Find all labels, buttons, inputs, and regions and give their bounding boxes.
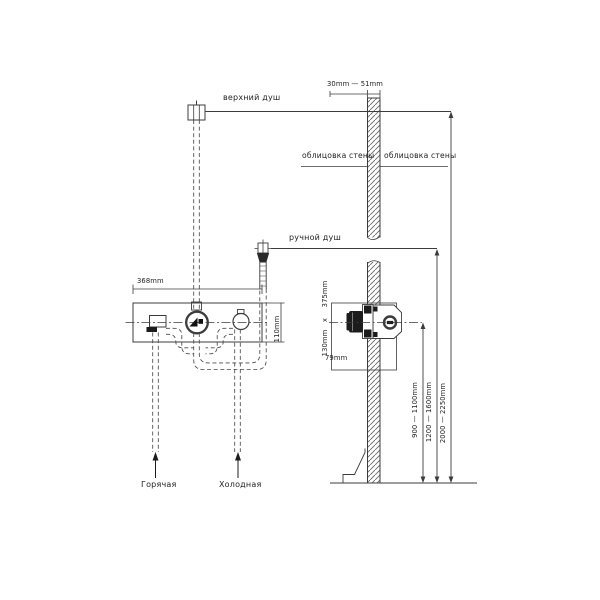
spout xyxy=(147,316,167,333)
label-wall-cladding-right: облицовка стены xyxy=(384,151,456,161)
pipe-spout-stub-inner xyxy=(166,334,194,348)
diagram-canvas xyxy=(0,0,600,600)
pipe-cold xyxy=(235,330,241,453)
top-shower-outlet xyxy=(188,101,205,121)
label-top-shower-height-range: 2000 — 2250mm xyxy=(439,383,447,443)
pipe-right-stub-outer xyxy=(206,328,234,354)
pipe-hot xyxy=(153,333,159,453)
diverter-knob xyxy=(186,302,208,333)
hand-shower-fitting xyxy=(255,240,272,290)
concealed-pipes xyxy=(153,120,267,452)
pipe-right-stub-inner xyxy=(206,334,234,348)
label-top-shower: верхний душ xyxy=(223,93,280,103)
label-trim-height: 110mm xyxy=(273,316,281,343)
label-roughin-height: 375mm xyxy=(321,281,329,308)
label-roughin-width: 130mm xyxy=(321,330,329,357)
label-roughin-depth: 79mm xyxy=(325,354,347,362)
pipe-spout-stub-outer xyxy=(166,328,194,354)
supply-arrows xyxy=(153,452,242,478)
label-wall-thickness-range: 30mm — 51mm xyxy=(327,80,383,88)
label-trim-width: 368mm xyxy=(137,277,164,285)
side-knob xyxy=(349,311,363,333)
bathtub-profile xyxy=(343,449,365,484)
installation-diagram: верхний душ 30mm — 51mm облицовка стены … xyxy=(0,0,600,600)
label-roughin-separator: x xyxy=(321,318,329,322)
wall-thickness-dimension xyxy=(330,90,380,98)
dim-368 xyxy=(133,285,262,295)
wall-hatch-upper xyxy=(368,98,381,238)
temperature-knob xyxy=(233,310,249,330)
wall-hatch-lower xyxy=(368,262,381,483)
mixer-front-view xyxy=(126,285,285,343)
label-hand-shower: ручной душ xyxy=(289,233,341,243)
pipe-top-shower xyxy=(194,120,200,309)
label-mixer-height-range: 900 — 1100mm xyxy=(411,382,419,438)
label-wall-cladding-left: облицовка стены xyxy=(302,151,374,161)
label-hot-supply: Горячая xyxy=(141,480,177,490)
label-cold-supply: Холодная xyxy=(219,480,261,490)
label-hand-shower-height-range: 1200 — 1600mm xyxy=(425,382,433,442)
